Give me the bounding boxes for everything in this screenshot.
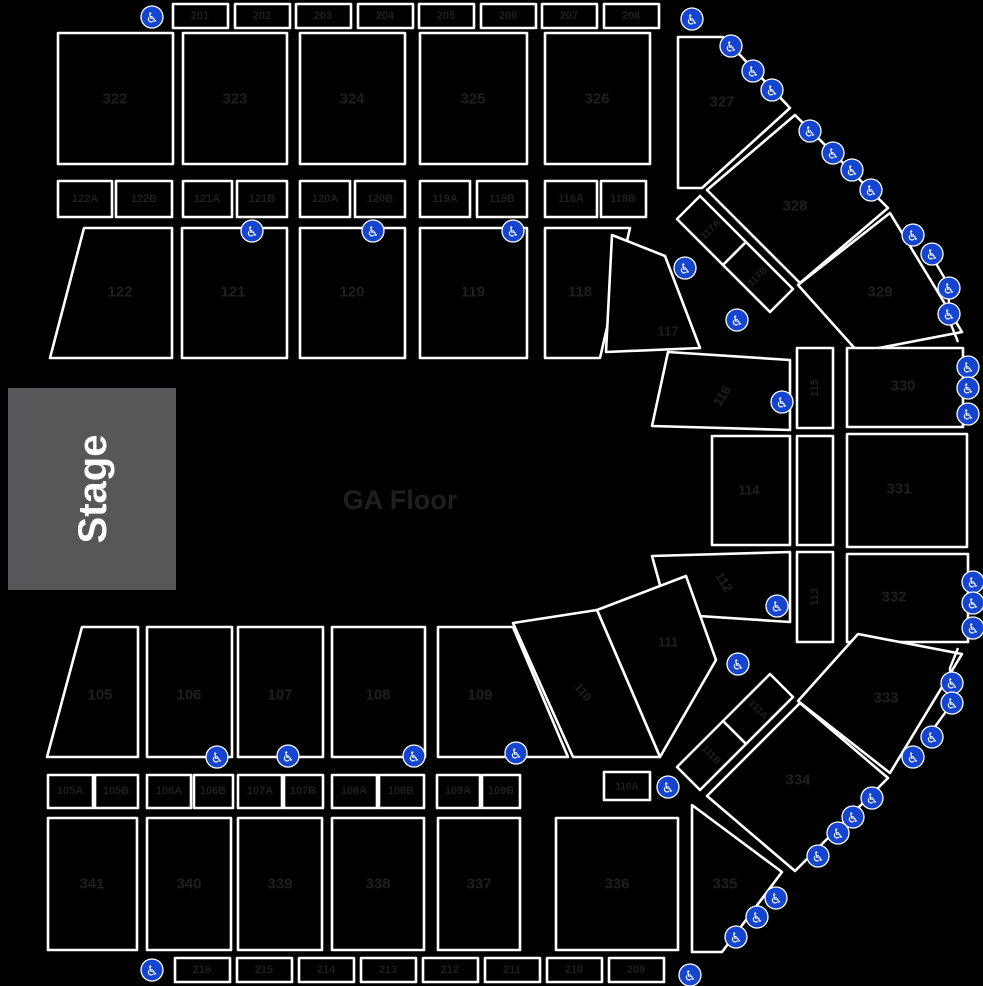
wheelchair-glyph: ♿ — [946, 696, 959, 712]
wheelchair-glyph: ♿ — [507, 224, 520, 240]
wheelchair-icon: ♿ — [720, 35, 742, 57]
section-label-323: 323 — [222, 91, 247, 108]
section-label-215: 215 — [255, 964, 273, 976]
wheelchair-glyph: ♿ — [408, 749, 421, 765]
seating-chart-svg: StageGA Floor201202203204205206207208216… — [0, 0, 983, 986]
section-label-120b: 120B — [367, 193, 393, 205]
section-label-111: 111 — [658, 635, 678, 650]
section-label-108: 108 — [365, 687, 390, 704]
wheelchair-icon: ♿ — [742, 60, 764, 82]
section-label-114: 114 — [739, 483, 761, 498]
wheelchair-icon: ♿ — [403, 745, 425, 767]
wheelchair-glyph: ♿ — [907, 750, 920, 766]
section-label-336: 336 — [604, 876, 629, 893]
wheelchair-icon: ♿ — [962, 617, 983, 639]
wheelchair-icon: ♿ — [902, 224, 924, 246]
wheelchair-glyph: ♿ — [725, 39, 738, 55]
wheelchair-icon: ♿ — [941, 692, 963, 714]
section-label-105a: 105A — [57, 785, 83, 797]
wheelchair-icon: ♿ — [841, 159, 863, 181]
section-label-108a: 108A — [341, 785, 367, 797]
wheelchair-glyph: ♿ — [684, 968, 697, 984]
wheelchair-icon: ♿ — [141, 959, 163, 981]
wheelchair-glyph: ♿ — [146, 963, 159, 979]
section-label-334: 334 — [785, 772, 811, 789]
wheelchair-icon: ♿ — [761, 79, 783, 101]
wheelchair-glyph: ♿ — [730, 930, 743, 946]
seating-chart: StageGA Floor201202203204205206207208216… — [0, 0, 983, 986]
section-label-209: 209 — [627, 964, 645, 976]
section-label-106a: 106A — [156, 785, 182, 797]
section-label-326: 326 — [584, 91, 609, 108]
wheelchair-icon: ♿ — [962, 592, 983, 614]
section-label-205: 205 — [437, 10, 455, 22]
wheelchair-icon: ♿ — [241, 220, 263, 242]
section-label-322: 322 — [102, 91, 127, 108]
wheelchair-icon: ♿ — [746, 906, 768, 928]
wheelchair-glyph: ♿ — [962, 407, 975, 423]
section-label-341: 341 — [79, 876, 104, 893]
wheelchair-icon: ♿ — [957, 356, 979, 378]
wheelchair-icon: ♿ — [505, 742, 527, 764]
wheelchair-icon: ♿ — [726, 309, 748, 331]
section-label-212: 212 — [441, 964, 459, 976]
section-label-122: 122 — [107, 284, 132, 301]
wheelchair-icon: ♿ — [362, 220, 384, 242]
wheelchair-glyph: ♿ — [510, 746, 523, 762]
wheelchair-icon: ♿ — [679, 964, 701, 986]
section-label-213: 213 — [379, 964, 397, 976]
wheelchair-icon: ♿ — [902, 746, 924, 768]
wheelchair-icon: ♿ — [674, 257, 696, 279]
wheelchair-icon: ♿ — [681, 8, 703, 30]
section-label-208: 208 — [622, 10, 640, 22]
wheelchair-icon: ♿ — [502, 220, 524, 242]
section-label-328: 328 — [782, 198, 807, 215]
wheelchair-glyph: ♿ — [211, 750, 224, 766]
wheelchair-glyph: ♿ — [846, 163, 859, 179]
wheelchair-glyph: ♿ — [282, 749, 295, 765]
wheelchair-icon: ♿ — [860, 179, 882, 201]
wheelchair-glyph: ♿ — [804, 124, 817, 140]
wheelchair-icon: ♿ — [807, 845, 829, 867]
section-label-327: 327 — [709, 94, 734, 111]
section-label-214: 214 — [317, 964, 336, 976]
section-label-338: 338 — [365, 876, 390, 893]
wheelchair-glyph: ♿ — [771, 599, 784, 615]
wheelchair-glyph: ♿ — [943, 307, 956, 323]
section-label-324: 324 — [339, 91, 365, 108]
wheelchair-icon: ♿ — [957, 403, 979, 425]
wheelchair-icon: ♿ — [827, 822, 849, 844]
wheelchair-icon: ♿ — [765, 887, 787, 909]
wheelchair-icon: ♿ — [725, 926, 747, 948]
wheelchair-glyph: ♿ — [865, 183, 878, 199]
section-label-106: 106 — [176, 687, 201, 704]
section-label-325: 325 — [460, 91, 485, 108]
section-label-113: 113 — [809, 588, 821, 606]
wheelchair-icon: ♿ — [771, 391, 793, 413]
wheelchair-glyph: ♿ — [967, 621, 980, 637]
section-label-339: 339 — [267, 876, 292, 893]
wheelchair-glyph: ♿ — [962, 360, 975, 376]
section-label-119: 119 — [461, 284, 485, 301]
wheelchair-icon: ♿ — [921, 726, 943, 748]
wheelchair-glyph: ♿ — [686, 12, 699, 28]
wheelchair-glyph: ♿ — [827, 146, 840, 162]
wheelchair-icon: ♿ — [861, 787, 883, 809]
section-label-202: 202 — [253, 10, 271, 22]
section-label-118a: 118A — [558, 193, 584, 205]
section-label-107a: 107A — [247, 785, 273, 797]
wheelchair-glyph: ♿ — [662, 780, 675, 796]
section-label-121: 121 — [220, 284, 245, 301]
section-label-337: 337 — [466, 876, 491, 893]
section-label-203: 203 — [314, 10, 332, 22]
section-label-335: 335 — [712, 876, 737, 893]
wheelchair-glyph: ♿ — [751, 910, 764, 926]
wheelchair-icon: ♿ — [766, 595, 788, 617]
wheelchair-glyph: ♿ — [967, 575, 980, 591]
section-label-120: 120 — [339, 284, 364, 301]
section-label-206: 206 — [499, 10, 517, 22]
wheelchair-icon: ♿ — [277, 745, 299, 767]
section-label-ga-floor: GA Floor — [343, 485, 458, 515]
wheelchair-glyph: ♿ — [967, 596, 980, 612]
section-label-115: 115 — [809, 379, 821, 397]
section-label-105b: 105B — [103, 785, 129, 797]
section-label-109a: 109A — [445, 785, 471, 797]
wheelchair-glyph: ♿ — [367, 224, 380, 240]
wheelchair-icon: ♿ — [206, 746, 228, 768]
wheelchair-icon: ♿ — [921, 243, 943, 265]
section-label-109: 109 — [467, 687, 492, 704]
section-label-118b: 118B — [610, 193, 636, 205]
stage-label: Stage — [71, 435, 115, 544]
section-label-109b: 109B — [488, 785, 514, 797]
wheelchair-icon: ♿ — [938, 303, 960, 325]
section-label-216: 216 — [193, 964, 211, 976]
wheelchair-glyph: ♿ — [770, 891, 783, 907]
section-label-201: 201 — [191, 10, 209, 22]
wheelchair-glyph: ♿ — [926, 730, 939, 746]
wheelchair-glyph: ♿ — [943, 281, 956, 297]
wheelchair-glyph: ♿ — [946, 676, 959, 692]
wheelchair-glyph: ♿ — [776, 395, 789, 411]
section-label-330: 330 — [890, 378, 915, 395]
wheelchair-glyph: ♿ — [926, 247, 939, 263]
section-label-332: 332 — [881, 589, 906, 606]
section-label-122a: 122A — [72, 193, 98, 205]
wheelchair-icon: ♿ — [938, 277, 960, 299]
wheelchair-icon: ♿ — [822, 142, 844, 164]
section-label-106b: 106B — [200, 785, 226, 797]
section-label-118: 118 — [568, 284, 592, 301]
section-label-333: 333 — [873, 690, 898, 707]
section-label-107: 107 — [267, 687, 292, 704]
section-label-340: 340 — [176, 876, 201, 893]
section-label-329: 329 — [867, 284, 892, 301]
section-label-331: 331 — [886, 481, 911, 498]
section-label-108b: 108B — [388, 785, 414, 797]
section-label-121a: 121A — [194, 193, 220, 205]
wheelchair-icon: ♿ — [141, 6, 163, 28]
section-label-211: 211 — [503, 964, 521, 976]
section-label-107b: 107B — [290, 785, 316, 797]
section-label-207: 207 — [560, 10, 578, 22]
section-label-210: 210 — [565, 964, 583, 976]
wheelchair-glyph: ♿ — [246, 224, 259, 240]
wheelchair-glyph: ♿ — [747, 64, 760, 80]
section-label-110a: 110A — [615, 782, 638, 793]
section-label-105: 105 — [87, 687, 112, 704]
section-label-119b: 119B — [489, 193, 515, 205]
wheelchair-glyph: ♿ — [832, 826, 845, 842]
wheelchair-glyph: ♿ — [766, 83, 779, 99]
wheelchair-glyph: ♿ — [679, 261, 692, 277]
wheelchair-glyph: ♿ — [146, 10, 159, 26]
wheelchair-icon: ♿ — [962, 571, 983, 593]
section-label-121b: 121B — [249, 193, 275, 205]
section-label-122b: 122B — [131, 193, 157, 205]
wheelchair-glyph: ♿ — [732, 657, 745, 673]
section-label-120a: 120A — [312, 193, 338, 205]
wheelchair-glyph: ♿ — [907, 228, 920, 244]
wheelchair-icon: ♿ — [657, 776, 679, 798]
wheelchair-glyph: ♿ — [962, 381, 975, 397]
section-shape-332[interactable] — [847, 554, 968, 642]
wheelchair-glyph: ♿ — [847, 810, 860, 826]
section-shape-unlabeled-70[interactable] — [797, 436, 833, 545]
section-label-204: 204 — [376, 10, 395, 22]
wheelchair-icon: ♿ — [941, 672, 963, 694]
wheelchair-glyph: ♿ — [812, 849, 825, 865]
section-label-117: 117 — [658, 324, 679, 339]
wheelchair-glyph: ♿ — [731, 313, 744, 329]
section-label-119a: 119A — [432, 193, 458, 205]
wheelchair-icon: ♿ — [799, 120, 821, 142]
wheelchair-icon: ♿ — [957, 377, 979, 399]
wheelchair-icon: ♿ — [727, 653, 749, 675]
wheelchair-glyph: ♿ — [866, 791, 879, 807]
